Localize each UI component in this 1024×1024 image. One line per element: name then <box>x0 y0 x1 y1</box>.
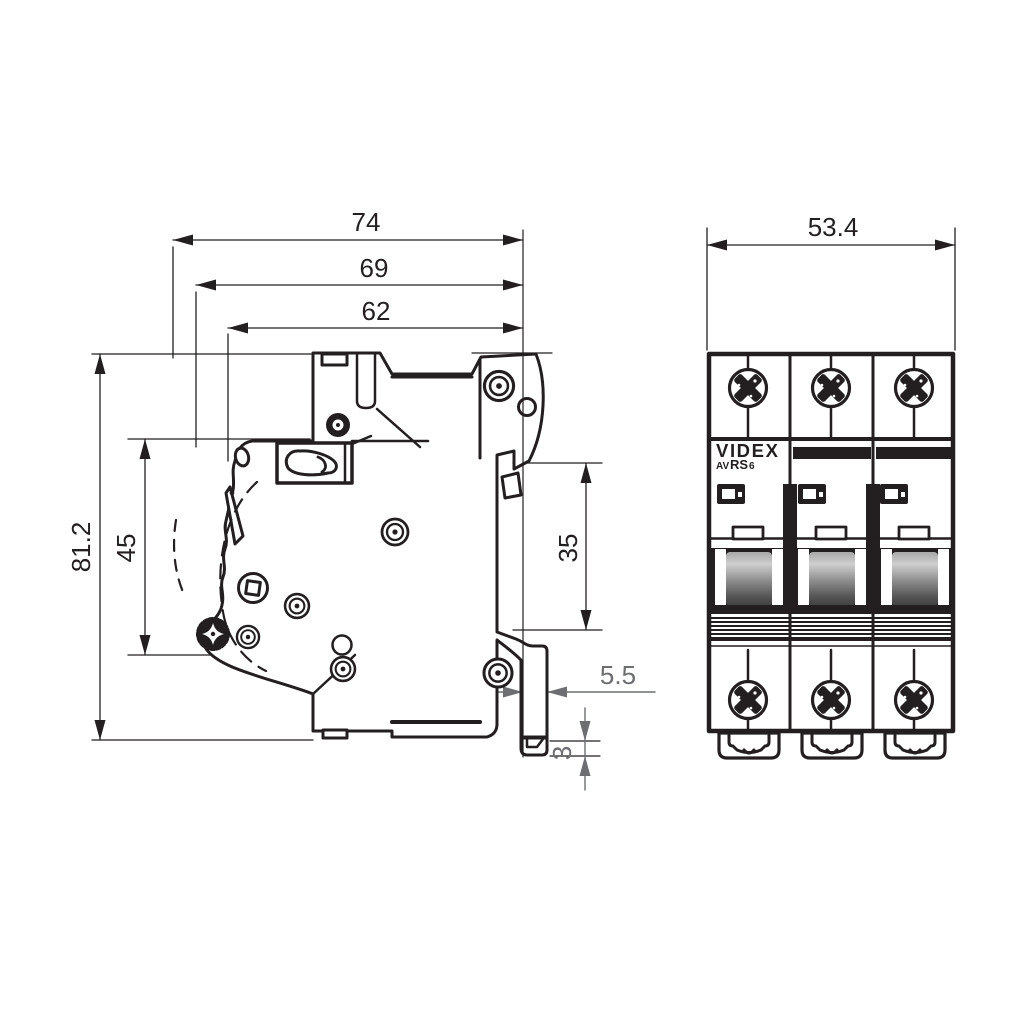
label-bar <box>876 447 951 459</box>
dim-3-label: 3 <box>547 746 577 760</box>
lever-slot-tab <box>816 527 846 539</box>
dim-62-label: 62 <box>362 296 391 326</box>
dim-45-label: 45 <box>111 534 141 563</box>
rivet-icon <box>484 659 512 687</box>
dim-5-5-label: 5.5 <box>600 660 636 690</box>
arrow-right-icon <box>503 280 523 291</box>
arrow-up-icon <box>581 463 592 483</box>
dim-74-label: 74 <box>352 207 381 237</box>
arrow-down-icon <box>95 720 106 740</box>
drawing-canvas: 74 69 62 81.2 <box>0 0 1024 1024</box>
toggle-lever <box>726 552 772 606</box>
dim-69-label: 69 <box>360 253 389 283</box>
top-notch <box>322 354 347 365</box>
rivet-icon <box>331 657 355 681</box>
arrow-right-icon <box>503 323 523 334</box>
side-body <box>174 353 547 755</box>
arrow-down-icon <box>581 610 592 630</box>
phillips-screw-icon <box>730 370 767 407</box>
arrow-up-icon <box>580 756 591 776</box>
bottom-notch <box>323 730 347 738</box>
terminal-shroud <box>885 733 945 758</box>
arrow-left-icon <box>707 240 727 251</box>
rivet-icon <box>237 626 259 648</box>
arrow-left-icon <box>228 323 248 334</box>
rivet-icon <box>484 371 513 400</box>
phillips-screw-icon <box>896 682 933 719</box>
square-terminal-screw <box>239 574 268 603</box>
indicator-window <box>880 484 908 504</box>
arrow-up-icon <box>95 354 106 374</box>
rivet-icon <box>382 519 408 545</box>
arrow-left-icon <box>196 280 216 291</box>
terminal-shroud <box>719 733 779 758</box>
donut-screw <box>326 413 350 437</box>
dim-3: 3 <box>547 708 600 790</box>
toggle-housing <box>277 443 352 483</box>
dim-35-label: 35 <box>553 534 583 563</box>
arrow-down-icon <box>580 721 591 741</box>
rivet-icon <box>285 594 309 618</box>
side-view: 74 69 62 81.2 <box>66 207 655 790</box>
dim-53-4-label: 53.4 <box>808 212 859 242</box>
toggle-band <box>709 548 953 610</box>
dim-35: 35 <box>513 463 602 630</box>
phillips-screw-icon <box>730 682 767 719</box>
indicator-window <box>717 484 745 504</box>
arrow-left-icon <box>173 235 193 246</box>
hatch-band <box>709 605 953 646</box>
phantom-arc-2 <box>174 520 183 592</box>
dim-53-4: 53.4 <box>707 212 955 350</box>
release-nub <box>502 473 521 498</box>
arrow-right-icon <box>503 235 523 246</box>
phillips-screw-icon <box>813 682 850 719</box>
phillips-screw-icon <box>896 370 933 407</box>
front-body: VIDEX AV RS 6 <box>709 354 953 758</box>
label-bar <box>793 447 871 459</box>
lever-slot-tab <box>733 527 763 539</box>
toggle-lever <box>809 552 855 606</box>
phillips-screw-icon <box>813 370 850 407</box>
dim-81-2-label: 81.2 <box>66 522 96 573</box>
lever-slot-tab <box>899 527 929 539</box>
pivot-hole <box>333 636 352 655</box>
indicator-window <box>798 484 826 504</box>
dim-5-5: 5.5 <box>490 660 655 698</box>
arrow-down-icon <box>140 635 151 655</box>
arrow-left-icon <box>547 687 567 698</box>
tab-hole <box>519 399 536 416</box>
arrow-up-icon <box>140 439 151 459</box>
dim-74: 74 <box>173 207 523 358</box>
adjuster-gear-icon <box>198 619 228 649</box>
front-view: 53.4 VIDEX AV <box>707 212 955 758</box>
arrow-right-icon <box>935 240 955 251</box>
toggle-lever <box>892 552 938 606</box>
terminal-shroud <box>802 733 862 758</box>
terminal-shrouds <box>719 733 945 758</box>
